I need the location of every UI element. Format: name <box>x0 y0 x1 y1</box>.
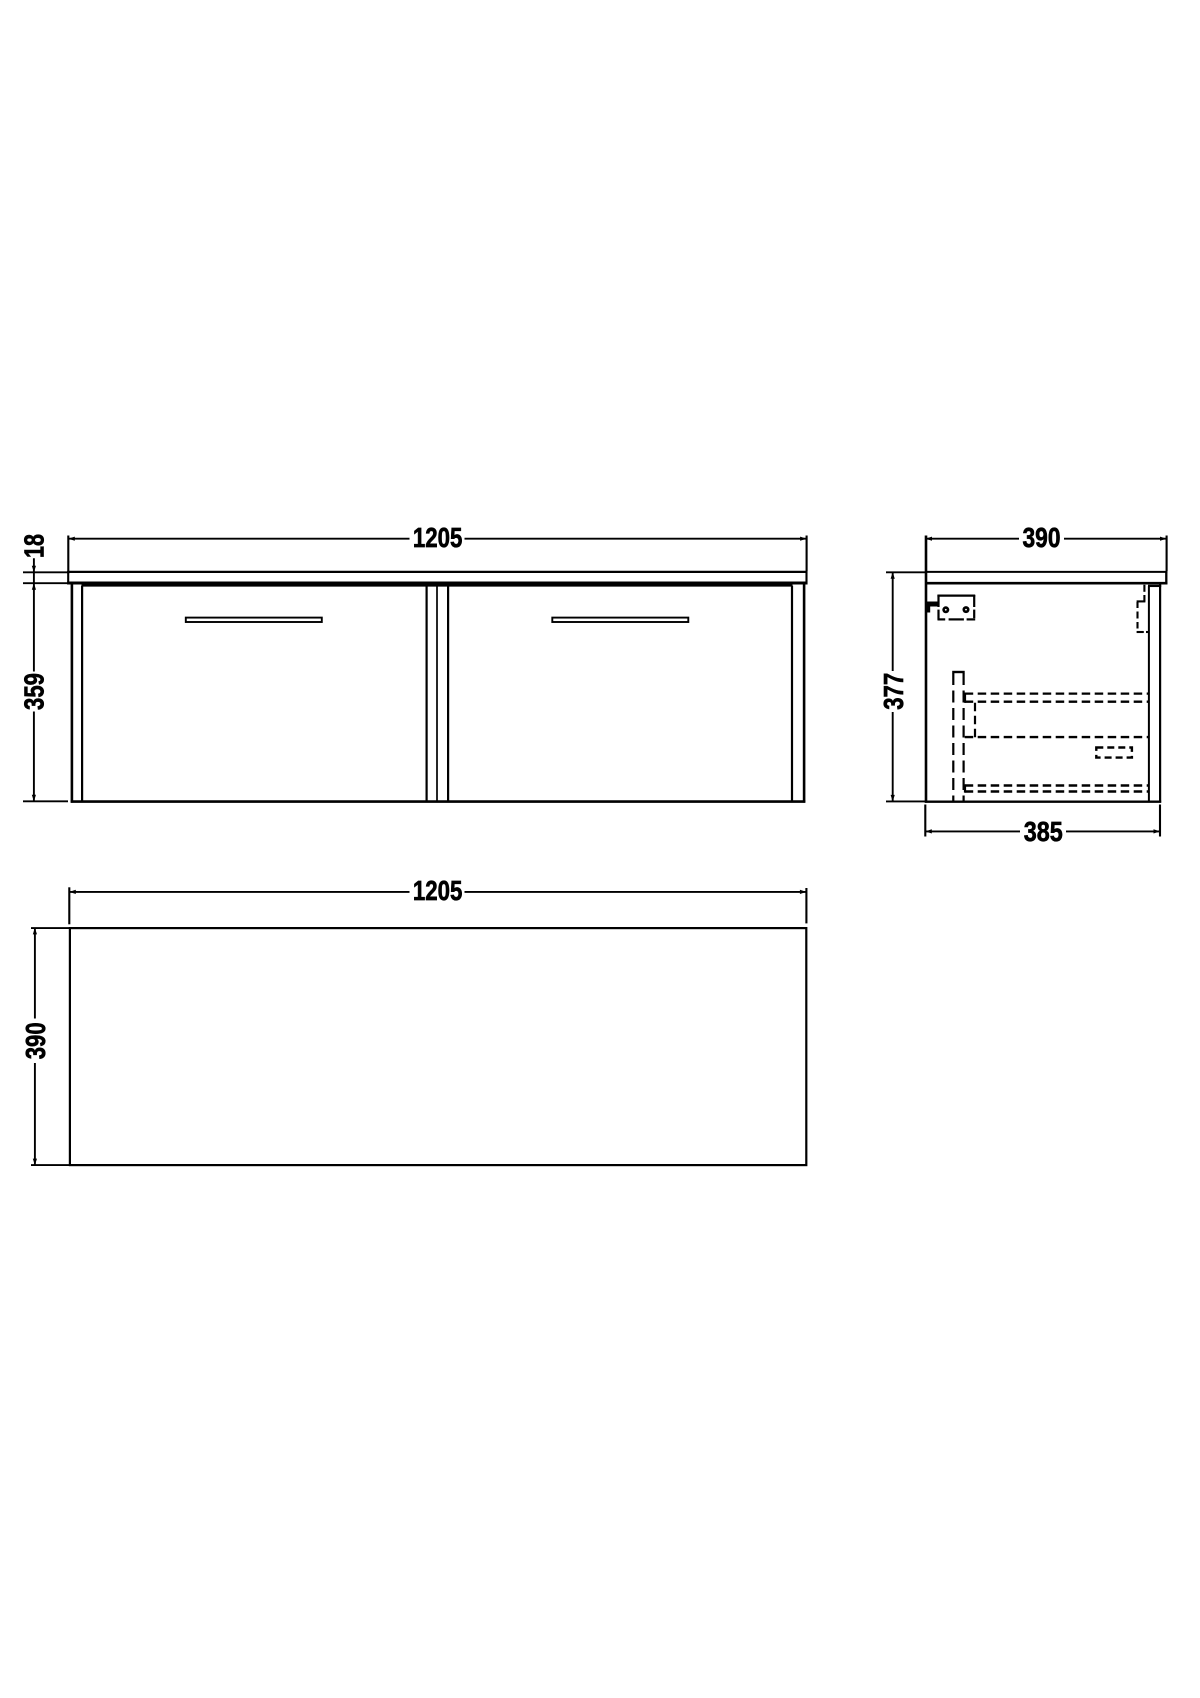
svg-text:390: 390 <box>20 1022 51 1059</box>
svg-text:377: 377 <box>878 673 909 710</box>
svg-text:390: 390 <box>1023 522 1061 553</box>
svg-text:1205: 1205 <box>413 522 463 553</box>
svg-text:1205: 1205 <box>413 875 463 906</box>
svg-text:18: 18 <box>18 534 49 558</box>
svg-text:385: 385 <box>1024 816 1063 847</box>
svg-text:359: 359 <box>19 673 50 710</box>
